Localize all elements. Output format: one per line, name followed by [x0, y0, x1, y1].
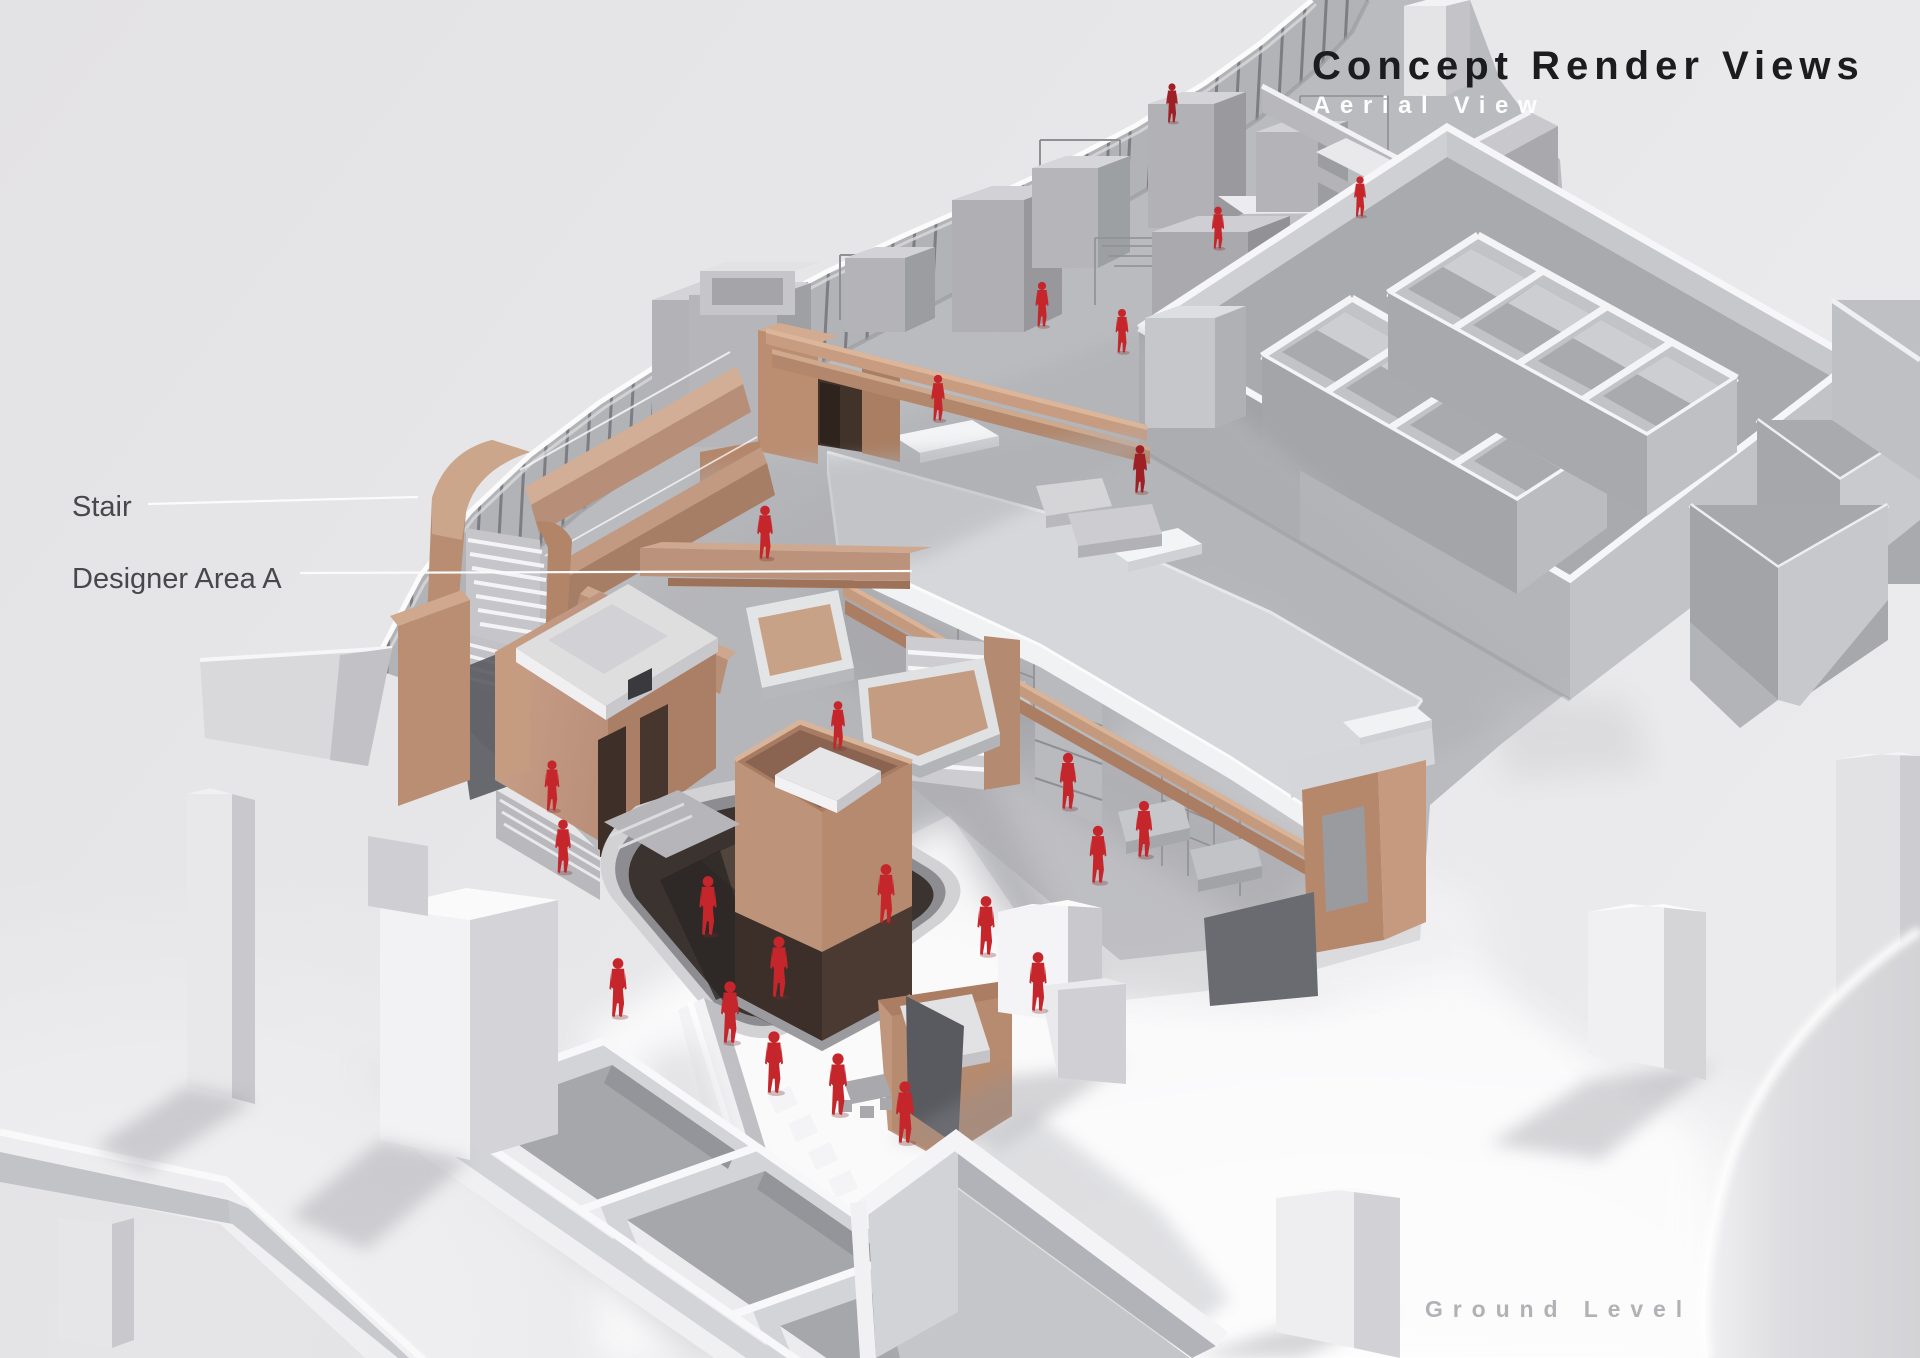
- svg-text:Aerial View: Aerial View: [1313, 92, 1546, 119]
- svg-text:Concept Render Views: Concept Render Views: [1312, 44, 1865, 88]
- svg-text:Designer Area A: Designer Area A: [72, 563, 282, 595]
- svg-text:Ground Level: Ground Level: [1425, 1296, 1692, 1322]
- svg-text:Stair: Stair: [72, 491, 132, 523]
